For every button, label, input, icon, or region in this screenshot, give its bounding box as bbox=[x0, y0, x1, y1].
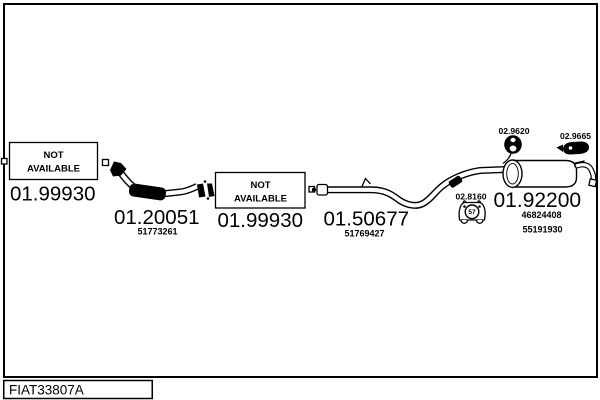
rubber-grommet-group: 02.9620 bbox=[498, 126, 529, 154]
tailpipe-tip bbox=[589, 179, 597, 187]
hanger-hook-mark bbox=[362, 179, 371, 187]
oem1-rear-silencer: 46824408 bbox=[521, 210, 561, 220]
coupling-bolt bbox=[312, 188, 316, 192]
not-available-line2: AVAILABLE bbox=[27, 164, 80, 175]
part-code-front-flange[interactable]: 01.99930 bbox=[10, 183, 96, 206]
front-flange-group: NOT AVAILABLE 01.99930 bbox=[2, 143, 109, 206]
clamp-group: 02.9665 bbox=[557, 131, 592, 155]
part-code-rear-silencer[interactable]: 01.92200 bbox=[494, 189, 582, 212]
part-code-rubber-hanger[interactable]: 02.8160 bbox=[455, 192, 486, 202]
footer-group: FIAT33807A bbox=[4, 381, 153, 399]
flex-section bbox=[128, 183, 166, 201]
hanger-bolt-left bbox=[463, 205, 466, 208]
connector-square-right bbox=[103, 160, 109, 166]
part-code-rubber-grommet[interactable]: 02.9620 bbox=[498, 126, 529, 136]
pipe-coupling bbox=[317, 185, 328, 196]
part-code-clamp[interactable]: 02.9665 bbox=[560, 131, 591, 141]
part-code-centre-pipe[interactable]: 01.50677 bbox=[324, 208, 410, 231]
exhaust-diagram-canvas: NOT AVAILABLE 01.99930 01.20051 51773261… bbox=[0, 0, 600, 400]
part-code-mid-gasket[interactable]: 01.99930 bbox=[218, 209, 304, 232]
rubber-hanger-group: 02.8160 57 bbox=[455, 192, 486, 224]
hanger-bolt-right bbox=[478, 205, 481, 208]
oem-front-pipe: 51773261 bbox=[137, 227, 177, 237]
mid-gasket-group: NOT AVAILABLE 01.99930 bbox=[216, 173, 315, 233]
rear-silencer-group: 01.92200 46824408 55191930 bbox=[494, 154, 597, 235]
hanger-foot-left bbox=[461, 220, 468, 223]
clamp-bolt-hole bbox=[569, 146, 573, 150]
hanger-stamp: 57 bbox=[468, 209, 476, 216]
exhaust-diagram-page: NOT AVAILABLE 01.99930 01.20051 51773261… bbox=[0, 0, 600, 400]
not-available-line1: NOT bbox=[43, 150, 63, 161]
connector-square-left bbox=[2, 159, 8, 165]
joint-flange-b bbox=[207, 184, 215, 198]
grommet-hole-bottom bbox=[510, 146, 517, 152]
clamp-body-icon bbox=[563, 142, 589, 155]
oem2-rear-silencer: 55191930 bbox=[522, 225, 562, 235]
drawing-code-label: FIAT33807A bbox=[9, 383, 84, 398]
hanger-foot-right bbox=[477, 220, 484, 223]
silencer-end-cap bbox=[503, 160, 522, 187]
clamp-tab-icon bbox=[557, 145, 564, 153]
not-available-line2: AVAILABLE bbox=[234, 194, 287, 205]
grommet-hole-top bbox=[510, 138, 515, 142]
front-pipe-group: 01.20051 51773261 bbox=[110, 162, 215, 237]
oem-centre-pipe: 51769427 bbox=[344, 229, 384, 239]
flange-bolt-top bbox=[204, 180, 207, 183]
flange-bolt-bottom bbox=[207, 197, 210, 200]
not-available-line1: NOT bbox=[250, 180, 270, 191]
joint-flange-a bbox=[197, 184, 206, 198]
